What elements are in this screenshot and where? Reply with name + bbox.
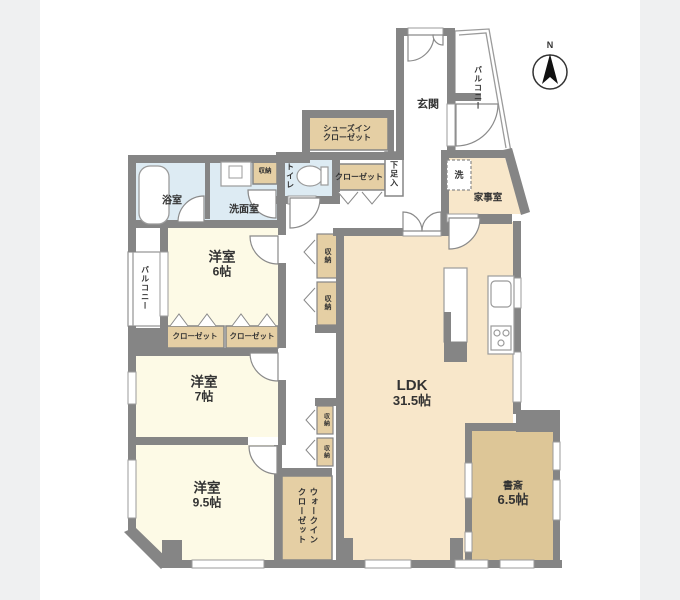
shoes-in-closet-box bbox=[306, 116, 388, 150]
toilet-door-arc bbox=[290, 198, 320, 228]
floor-plan-drawing bbox=[0, 0, 680, 600]
kitchen-island bbox=[444, 268, 467, 362]
closet-b6-right-box bbox=[226, 326, 278, 348]
stove-icon bbox=[491, 326, 511, 350]
room-study-area bbox=[472, 431, 553, 560]
compass-icon bbox=[533, 54, 567, 89]
floor-plan: 浴室 洗面室 収納 トイレ シューズイン クローゼット クローゼット 下足入 玄… bbox=[0, 0, 680, 600]
walk-in-closet-box bbox=[282, 476, 332, 560]
hall-closet-box bbox=[333, 164, 385, 190]
toilet-icon bbox=[297, 166, 328, 186]
entrance-door-arc bbox=[408, 35, 434, 61]
hall-storage-lower-box bbox=[317, 282, 337, 325]
ldk-door-right-arc bbox=[422, 212, 441, 231]
kitchen-counter bbox=[488, 276, 514, 354]
low-storage-lower-box bbox=[317, 438, 333, 466]
hall-storage-upper-box bbox=[317, 234, 337, 278]
sink-icon bbox=[221, 162, 251, 186]
low-storage-upper-box bbox=[317, 406, 333, 434]
entrance-door-small-arc bbox=[433, 35, 443, 45]
closet-b6-left-box bbox=[167, 326, 224, 348]
ldk-door-left-arc bbox=[403, 212, 422, 231]
bathtub-icon bbox=[139, 166, 169, 224]
kitchen-sink-icon bbox=[491, 281, 511, 307]
washer-icon bbox=[447, 160, 471, 190]
